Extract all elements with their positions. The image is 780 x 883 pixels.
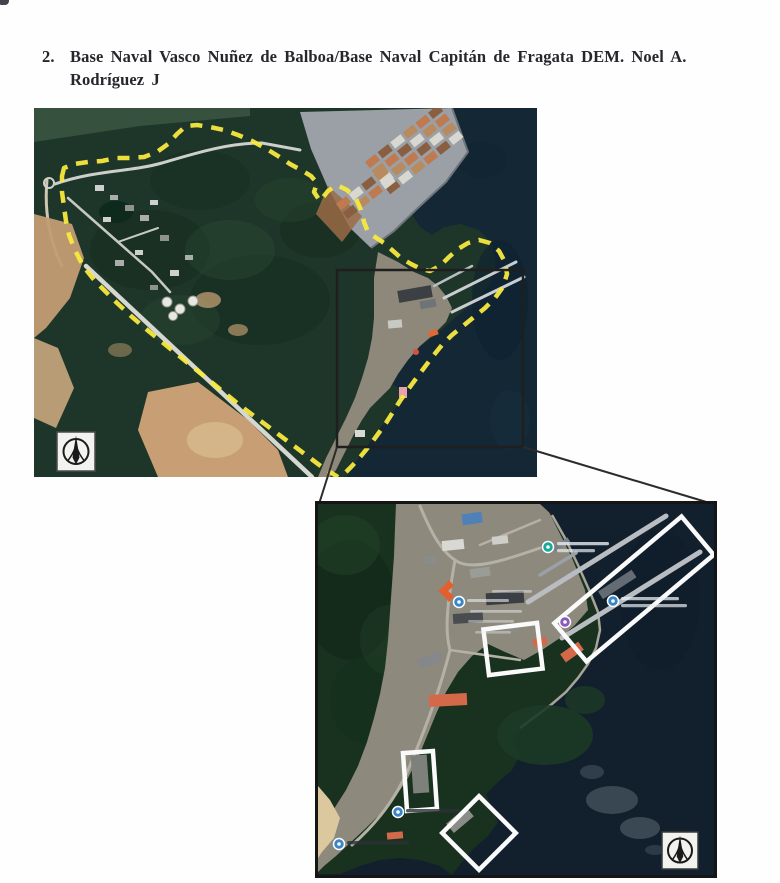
section-heading: 2. Base Naval Vasco Nuñez de Balboa/Base… xyxy=(42,45,748,91)
document-page: 2. Base Naval Vasco Nuñez de Balboa/Base… xyxy=(0,0,780,883)
north-compass-icon-detail xyxy=(662,832,698,869)
north-compass-icon xyxy=(57,432,95,471)
section-number: 2. xyxy=(42,45,58,91)
overview-map-figure xyxy=(34,108,537,477)
scan-artifact-mark xyxy=(0,0,9,5)
section-title-line1: Base Naval Vasco Nuñez de Balboa/Base Na… xyxy=(70,47,686,66)
section-title: Base Naval Vasco Nuñez de Balboa/Base Na… xyxy=(70,45,686,91)
detail-map-figure xyxy=(315,501,717,878)
section-title-line2: Rodríguez J xyxy=(70,70,160,89)
